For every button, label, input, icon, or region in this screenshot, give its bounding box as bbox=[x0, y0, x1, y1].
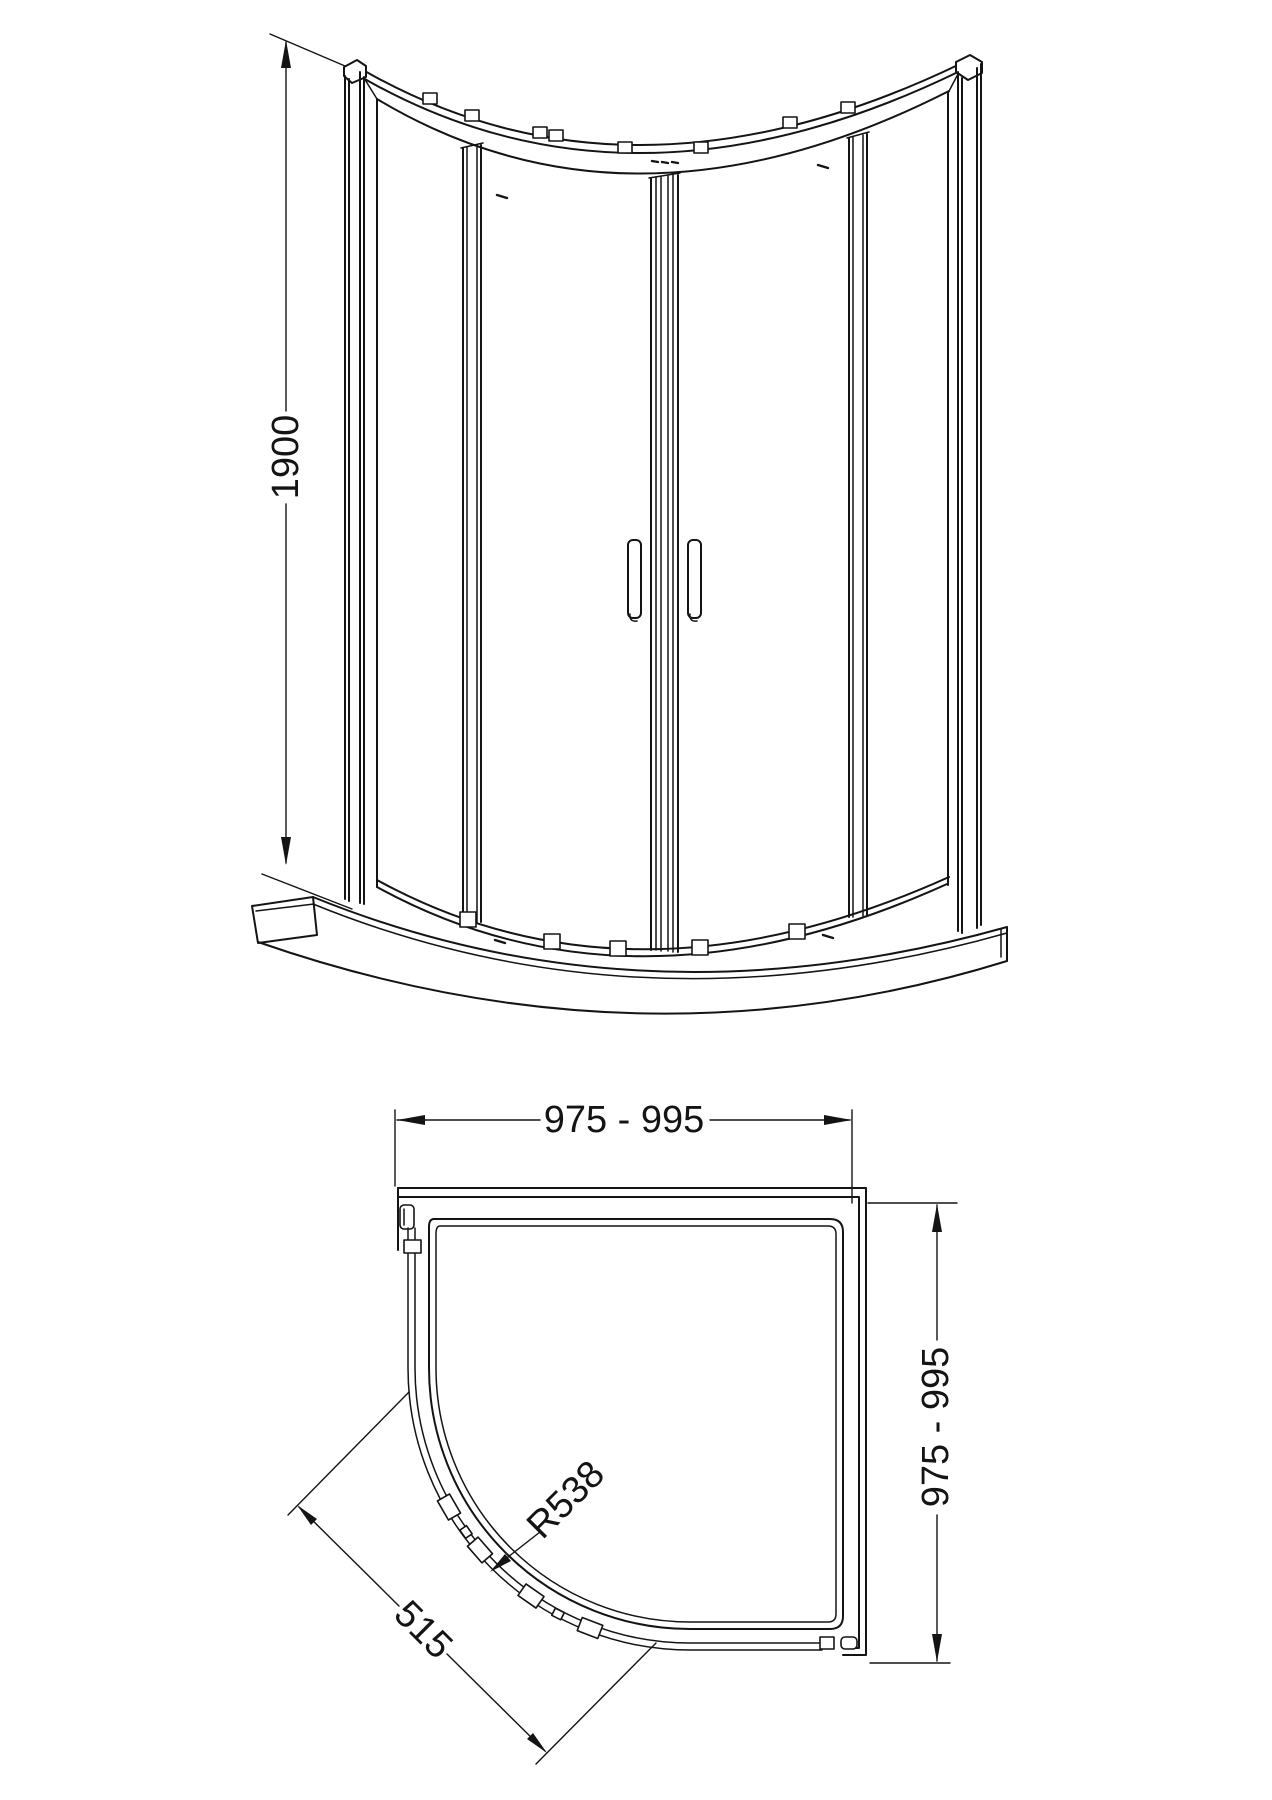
plan-wall-profile bbox=[400, 1205, 414, 1229]
left-door-stile bbox=[461, 143, 483, 923]
plan-door-tracks bbox=[404, 1228, 834, 1650]
arrowhead-left bbox=[397, 1115, 425, 1125]
arrowhead-down bbox=[281, 837, 291, 865]
right-wall-profile bbox=[948, 55, 982, 933]
depth-dimension: 975 - 995 bbox=[868, 1203, 957, 1663]
glass-clip-marks bbox=[495, 165, 833, 943]
centre-meeting-stiles bbox=[649, 173, 680, 952]
track-end-seal-bottom bbox=[820, 1637, 834, 1649]
drawing-canvas: 1900 bbox=[0, 0, 1272, 1800]
height-dimension-label: 1900 bbox=[265, 415, 307, 500]
plan-walls bbox=[398, 1188, 866, 1655]
opening-dimension: 515 bbox=[288, 1392, 656, 1764]
height-dimension: 1900 bbox=[262, 34, 352, 909]
plan-view: 975 - 995 975 - 995 R538 515 bbox=[288, 1099, 957, 1764]
right-door-handle bbox=[688, 540, 701, 621]
radius-dimension-label: R538 bbox=[519, 1453, 613, 1547]
arrowhead-right bbox=[824, 1115, 852, 1125]
technical-drawing: 1900 bbox=[0, 0, 1272, 1800]
depth-dimension-label: 975 - 995 bbox=[915, 1347, 957, 1508]
header-rail bbox=[363, 64, 960, 174]
right-door-stile bbox=[847, 132, 869, 917]
arrowhead-lower bbox=[527, 1733, 547, 1753]
left-wall-profile bbox=[344, 60, 377, 904]
arrowhead-down bbox=[932, 1634, 942, 1662]
track-end-seal-top bbox=[404, 1240, 421, 1253]
arrowhead-up bbox=[932, 1204, 942, 1232]
arrowhead-upper bbox=[297, 1505, 317, 1525]
front-elevation-view: 1900 bbox=[252, 34, 1007, 1014]
arrowhead-up bbox=[281, 40, 291, 68]
left-door-handle bbox=[628, 540, 641, 621]
width-dimension-label: 975 - 995 bbox=[544, 1099, 705, 1141]
wall-end-bracket bbox=[841, 1637, 857, 1649]
